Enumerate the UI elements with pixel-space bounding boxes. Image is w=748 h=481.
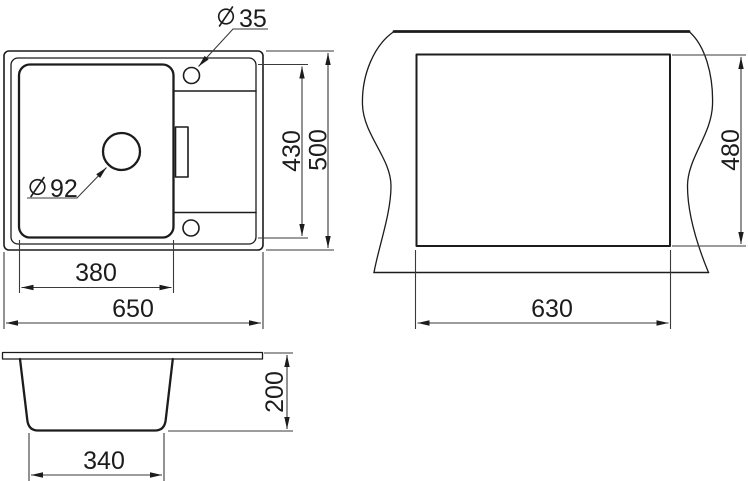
dim-label-cutout-depth: 480 (717, 129, 745, 171)
dim-label-inner-length: 430 (278, 130, 306, 172)
sink-rim-inner-edge (11, 58, 256, 244)
dimension-bowl-bottom-width-340: 340 (29, 433, 164, 481)
callout-faucet-hole-diameter: 35 (199, 5, 269, 67)
dim-label-bowl-depth: 200 (261, 371, 289, 413)
dim-label-drain-hole: 92 (50, 175, 78, 203)
dimension-overall-width-650: 650 (4, 252, 263, 329)
dimension-bowl-depth-200: 200 (168, 353, 293, 431)
technical-drawing-canvas: 35 92 430 500 (0, 0, 748, 481)
diameter-icon (219, 7, 234, 26)
diameter-icon (30, 178, 45, 197)
cutout-rectangle (417, 55, 671, 247)
faucet-hole-top (184, 68, 200, 84)
faucet-hole-bottom (183, 220, 199, 236)
dimension-inner-length-430: 430 (258, 65, 308, 239)
dim-label-overall-width: 650 (112, 295, 154, 323)
bowl-profile (20, 359, 173, 431)
dimension-cutout-width-630: 630 (416, 250, 671, 329)
dimension-cutout-depth-480: 480 (672, 55, 746, 246)
countertop-break-line-left (362, 32, 394, 273)
leader-line (199, 29, 269, 67)
sink-rim-profile (3, 353, 263, 360)
dim-label-bowl-width: 380 (75, 259, 117, 287)
dim-label-bowl-bottom-width: 340 (83, 447, 125, 475)
countertop-break-line-right (688, 32, 713, 273)
dim-label-faucet-hole: 35 (239, 5, 267, 33)
callout-drain-hole-diameter: 92 (27, 168, 107, 204)
sink-top-view: 35 92 430 500 (4, 5, 334, 329)
drain-hole (103, 133, 140, 170)
dim-label-overall-depth: 500 (305, 129, 333, 171)
dimension-bowl-width-380: 380 (20, 240, 174, 293)
sink-bowl-outline (19, 65, 174, 238)
sink-side-view: 200 340 (3, 353, 294, 481)
sink-technical-drawing: 35 92 430 500 (0, 0, 748, 481)
overflow-slot (176, 127, 189, 177)
countertop-cutout-view: 480 630 (362, 32, 746, 330)
dim-label-cutout-width: 630 (531, 295, 573, 323)
sink-outer-edge (4, 51, 263, 250)
